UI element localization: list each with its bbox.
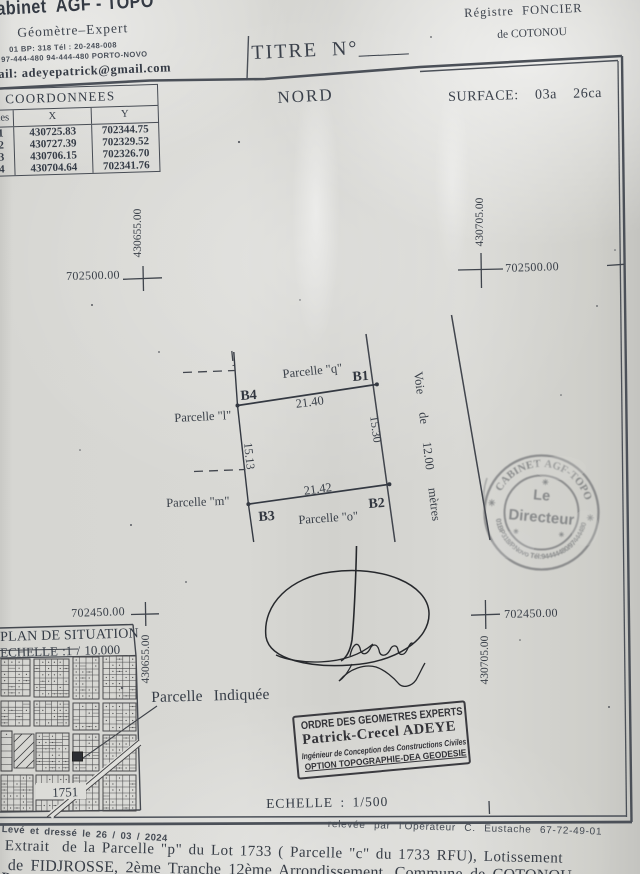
svg-text:✳: ✳ <box>542 478 549 487</box>
svg-text:✳: ✳ <box>559 531 565 539</box>
svg-text:Le: Le <box>533 487 551 504</box>
svg-text:Directeur: Directeur <box>508 506 575 529</box>
svg-text:✳: ✳ <box>488 498 496 508</box>
